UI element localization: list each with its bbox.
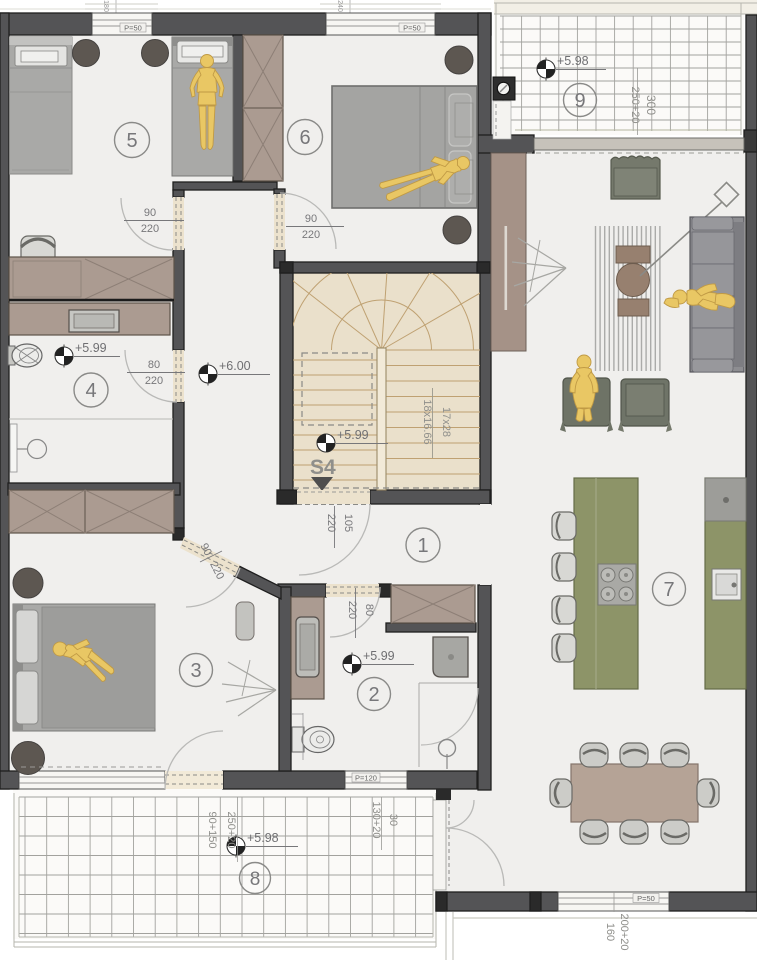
svg-text:6: 6 xyxy=(299,127,310,149)
svg-text:P=50: P=50 xyxy=(124,24,142,33)
svg-text:8: 8 xyxy=(250,869,261,890)
svg-text:220: 220 xyxy=(145,375,163,387)
svg-text:160: 160 xyxy=(604,923,616,941)
svg-text:250+20: 250+20 xyxy=(225,811,237,848)
svg-text:90: 90 xyxy=(144,207,156,219)
svg-text:+5.99: +5.99 xyxy=(363,649,395,663)
svg-text:4: 4 xyxy=(85,380,96,402)
svg-text:5: 5 xyxy=(126,130,137,152)
svg-text:+5.99: +5.99 xyxy=(337,428,369,442)
svg-text:+5.99: +5.99 xyxy=(75,341,107,355)
svg-text:2: 2 xyxy=(368,684,379,706)
svg-text:P=50: P=50 xyxy=(637,894,655,903)
svg-text:18x16.66: 18x16.66 xyxy=(421,399,433,444)
svg-text:220: 220 xyxy=(302,229,320,241)
svg-text:300: 300 xyxy=(644,95,658,115)
svg-text:80: 80 xyxy=(148,359,160,371)
svg-text:220: 220 xyxy=(346,601,358,619)
svg-text:130+20: 130+20 xyxy=(370,801,382,838)
svg-text:80: 80 xyxy=(363,604,375,616)
svg-text:P=120: P=120 xyxy=(355,774,377,783)
svg-text:9: 9 xyxy=(574,90,585,112)
svg-text:90+150: 90+150 xyxy=(206,811,218,848)
svg-text:220: 220 xyxy=(141,223,159,235)
svg-text:90: 90 xyxy=(305,213,317,225)
svg-text:200+20: 200+20 xyxy=(618,913,630,950)
svg-text:7: 7 xyxy=(663,579,674,601)
svg-text:+6.00: +6.00 xyxy=(219,359,251,373)
svg-text:P=50: P=50 xyxy=(403,24,421,33)
svg-text:105: 105 xyxy=(342,514,354,532)
svg-text:220: 220 xyxy=(325,514,337,532)
svg-text:30: 30 xyxy=(387,814,399,826)
svg-text:3: 3 xyxy=(190,660,201,682)
svg-text:S4: S4 xyxy=(310,456,336,479)
svg-text:250+20: 250+20 xyxy=(629,86,641,123)
svg-text:+5.98: +5.98 xyxy=(247,831,279,845)
svg-text:+5.98: +5.98 xyxy=(557,54,589,68)
svg-text:180: 180 xyxy=(102,0,109,12)
svg-text:17x28: 17x28 xyxy=(440,407,452,437)
svg-text:240: 240 xyxy=(336,0,343,12)
svg-text:1: 1 xyxy=(417,535,428,557)
